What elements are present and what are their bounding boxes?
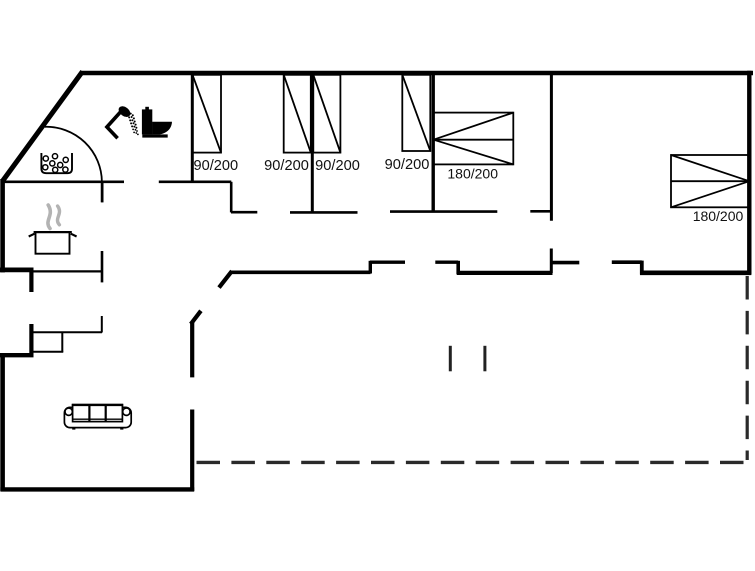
svg-text:90/200: 90/200 — [315, 158, 360, 174]
svg-text:90/200: 90/200 — [264, 158, 309, 174]
svg-text:180/200: 180/200 — [693, 208, 744, 224]
svg-text:90/200: 90/200 — [193, 158, 238, 174]
svg-text:180/200: 180/200 — [447, 166, 498, 182]
svg-text:90/200: 90/200 — [385, 157, 430, 173]
